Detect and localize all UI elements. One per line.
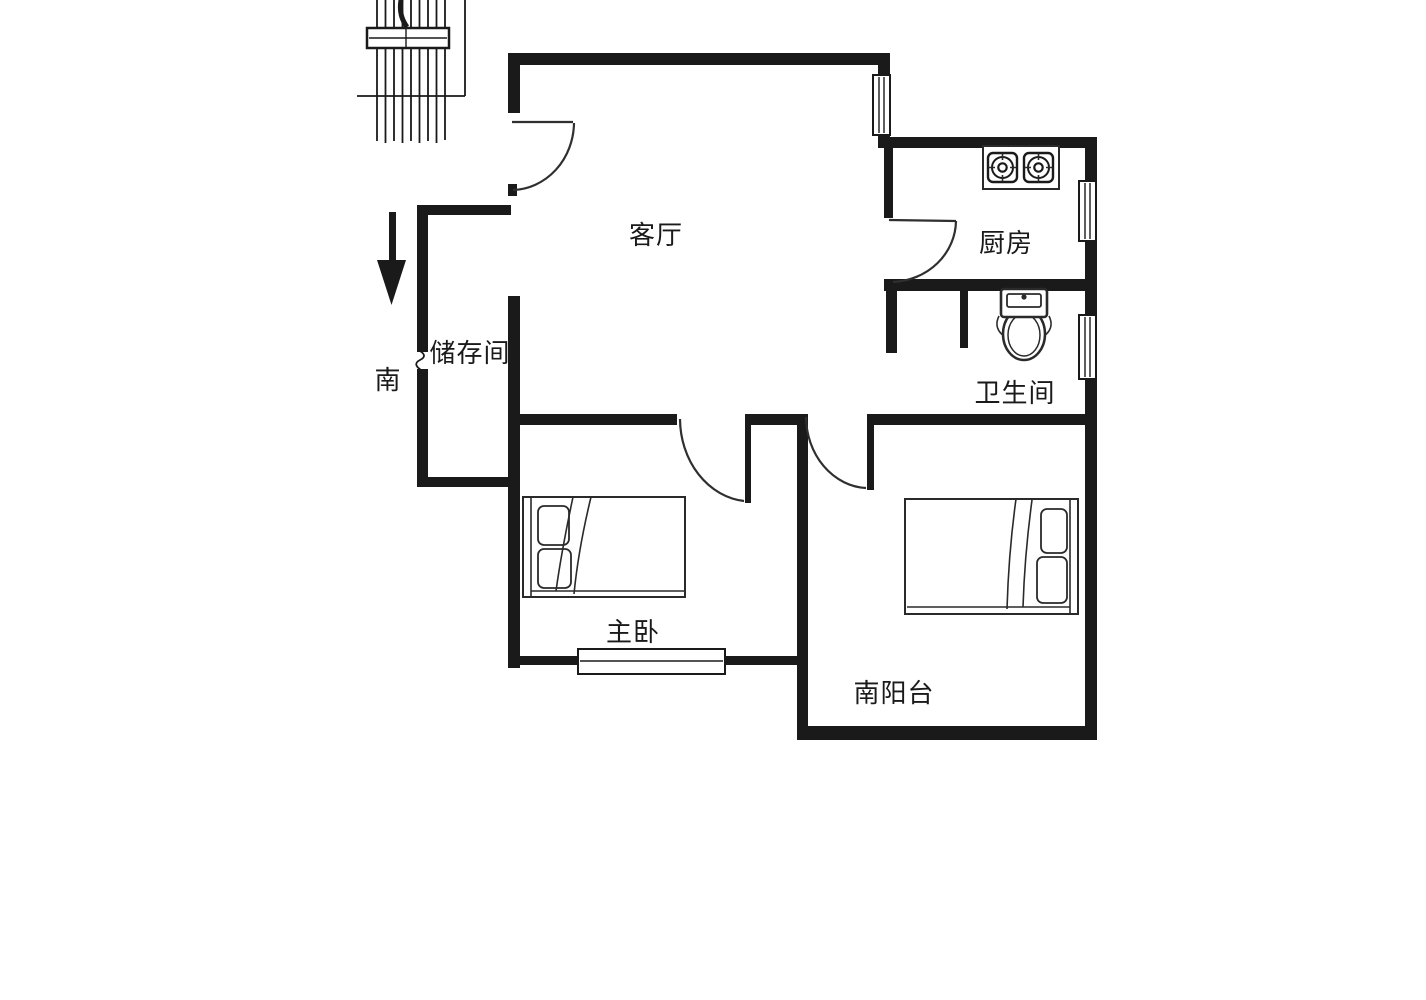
- floor-plan-page: 南: [0, 0, 1426, 1000]
- toilet-icon: [997, 289, 1051, 360]
- wall-storage-bottom: [417, 477, 511, 487]
- label-bathroom: 卫生间: [974, 378, 1055, 408]
- wall-bedroom-door-stub: [745, 418, 751, 503]
- wall-storage-left: [417, 205, 428, 487]
- label-south-balcony: 南阳台: [853, 678, 934, 708]
- stair-flight-arrow: [400, 0, 407, 27]
- balcony-door-arc-icon: [806, 417, 866, 488]
- wall-storage-top: [417, 205, 511, 215]
- wall-balcony-bottom: [797, 726, 1097, 740]
- stove-icon: [983, 146, 1059, 189]
- living-room-window-icon: [873, 75, 890, 135]
- wall-balcony-left: [797, 414, 808, 740]
- label-living-room: 客厅: [629, 220, 683, 250]
- floor-plan-drawing: 南: [0, 0, 1426, 1000]
- wall-kitchen-bottom: [884, 279, 1097, 291]
- bed-icon: [523, 497, 685, 597]
- label-storage-room: 储存间: [429, 338, 510, 368]
- bedroom-door-arc-icon: [680, 419, 744, 501]
- wall-bathroom-bottom: [867, 414, 1097, 425]
- bathroom-window-icon: [1079, 315, 1096, 379]
- wall-bathroom-stub-a: [886, 291, 897, 353]
- label-master-bedroom: 主卧: [606, 617, 660, 647]
- bed-icon: [905, 499, 1078, 614]
- wall-bathroom-stub-b: [960, 291, 968, 348]
- label-kitchen: 厨房: [979, 228, 1033, 258]
- wall-bedroom-top: [508, 414, 677, 425]
- bedroom-window-icon: [578, 649, 725, 674]
- staircase-icon: [357, 0, 465, 143]
- wall-living-top: [508, 53, 890, 65]
- wall-entry-left: [508, 53, 520, 113]
- compass-label: 南: [374, 365, 401, 395]
- entrance-door-arc-icon: [512, 122, 574, 190]
- wall-balcony-door-stub: [867, 417, 874, 490]
- wall-kitchen-left: [884, 137, 893, 218]
- wall-break-symbol: [414, 351, 431, 370]
- kitchen-door-arc-icon: [889, 220, 956, 282]
- kitchen-window-icon: [1079, 181, 1096, 241]
- south-arrow-icon: [377, 212, 406, 305]
